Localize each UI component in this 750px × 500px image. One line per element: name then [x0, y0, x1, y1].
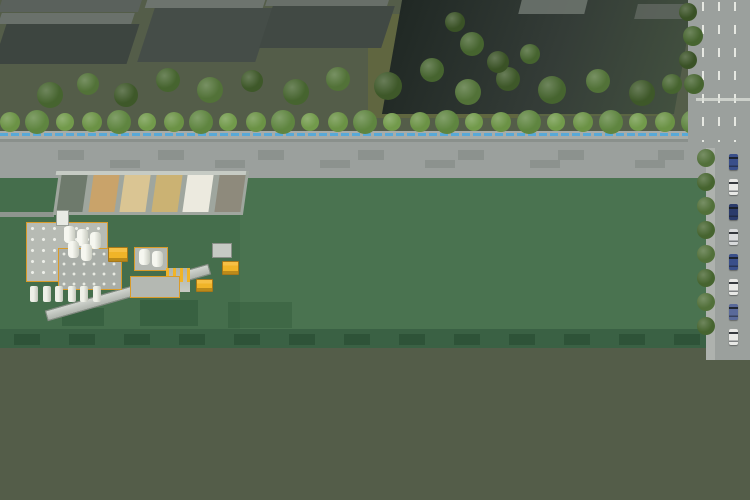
- side-road-car: [729, 154, 738, 170]
- tree-cluster: [283, 79, 309, 105]
- road-patch: [215, 160, 245, 168]
- hedge-tree: [547, 113, 565, 131]
- hedge-tree: [435, 110, 459, 134]
- side-road-tree: [697, 149, 715, 167]
- hedge-tree: [107, 110, 131, 134]
- side-road-car: [729, 329, 738, 345]
- hedge-tree: [164, 112, 184, 132]
- side-road-tree: [697, 269, 715, 287]
- road-patch: [458, 150, 484, 160]
- tree-cluster: [445, 12, 465, 32]
- cross-road-lane-dash: [734, 2, 736, 142]
- plant-hopper: [55, 286, 63, 302]
- hedge-tree: [246, 112, 266, 132]
- tree-cluster: [538, 76, 566, 104]
- tree-cluster: [77, 73, 99, 95]
- tree-cluster: [326, 67, 350, 91]
- tree-cluster: [460, 32, 484, 56]
- aggregate-material: [151, 175, 182, 212]
- aerial-factory-site-render: [0, 0, 750, 500]
- plant-platform: [130, 276, 180, 298]
- transfer-cart: [222, 261, 239, 275]
- cross-road-lane-dash: [718, 2, 720, 142]
- mixer-tank: [139, 249, 150, 265]
- tree-cluster: [241, 70, 263, 92]
- plant-hopper: [80, 286, 88, 302]
- field-slab: [0, 24, 139, 64]
- hedge-tree: [353, 110, 377, 134]
- hedge-tree: [0, 112, 20, 132]
- tree-cluster: [37, 82, 63, 108]
- side-road-tree: [697, 317, 715, 335]
- tree-cluster: [520, 44, 540, 64]
- hedge-tree: [138, 113, 156, 131]
- road-patch: [158, 150, 184, 160]
- field-slab: [0, 0, 142, 12]
- tree-cluster: [156, 68, 180, 92]
- hedge-tree: [410, 112, 430, 132]
- hedge-tree: [82, 112, 102, 132]
- aggregate-material: [88, 175, 119, 212]
- hedge-tree: [271, 110, 295, 134]
- hedge-tree: [56, 113, 74, 131]
- aggregate-material: [214, 175, 245, 212]
- yellow-pallet: [196, 279, 213, 292]
- tree-cluster: [679, 3, 697, 21]
- side-road-car: [729, 304, 738, 320]
- road-patch: [558, 150, 584, 160]
- ground-mark: [228, 302, 292, 328]
- plant-hopper: [93, 286, 101, 302]
- side-road-tree: [697, 293, 715, 311]
- side-road-tree: [697, 245, 715, 263]
- hedge-tree: [629, 113, 647, 131]
- aggregate-material: [182, 175, 213, 212]
- side-road-tree: [697, 197, 715, 215]
- side-road-car: [729, 204, 738, 220]
- road-patch: [110, 160, 140, 168]
- tree-cluster: [586, 69, 610, 93]
- field-slab: [259, 6, 395, 48]
- tree-cluster: [684, 74, 704, 94]
- tree-cluster: [679, 51, 697, 69]
- tree-cluster: [374, 72, 402, 100]
- aggregate-bin-edge: [56, 171, 247, 175]
- mixer-tank: [81, 244, 92, 261]
- line-cabinet: [212, 243, 232, 258]
- mixer-tank: [152, 251, 163, 267]
- road-patch: [425, 160, 455, 168]
- tree-cluster: [662, 74, 682, 94]
- hedge-tree: [599, 110, 623, 134]
- road-patch: [635, 160, 665, 168]
- side-road-tree: [697, 221, 715, 239]
- tree-cluster: [487, 51, 509, 73]
- plant-hopper: [43, 286, 51, 302]
- road-patch: [258, 150, 284, 160]
- side-road-car: [729, 254, 738, 270]
- road-patch: [320, 160, 350, 168]
- field-slab: [518, 0, 587, 14]
- side-road-tree: [697, 173, 715, 191]
- side-road-car: [729, 179, 738, 195]
- plant-hopper: [30, 286, 38, 302]
- tree-cluster: [455, 79, 481, 105]
- tree-cluster: [197, 77, 223, 103]
- mixer-tank: [68, 241, 79, 258]
- field-slab: [145, 0, 266, 8]
- tree-cluster: [683, 26, 703, 46]
- side-road-car: [729, 229, 738, 245]
- factory-edge-blocks: [14, 334, 714, 345]
- yellow-machine: [108, 247, 128, 262]
- road-patch: [530, 160, 560, 168]
- ground-mark: [140, 300, 198, 326]
- plant-tower: [56, 210, 69, 226]
- side-road-car: [729, 279, 738, 295]
- hedge-tree: [517, 110, 541, 134]
- road-patch: [658, 150, 684, 160]
- tree-cluster: [114, 83, 138, 107]
- aggregate-material: [56, 175, 87, 212]
- cross-road-stop-line: [696, 98, 750, 101]
- field-slab: [0, 13, 135, 24]
- road-patch: [358, 150, 384, 160]
- road-patch: [58, 150, 84, 160]
- hedge-tree: [465, 113, 483, 131]
- aggregate-material: [119, 175, 150, 212]
- tree-cluster: [420, 58, 444, 82]
- plant-hopper: [68, 286, 76, 302]
- field-slab: [137, 8, 273, 62]
- hedge-tree: [328, 112, 348, 132]
- cross-road-lane-dash: [702, 2, 704, 142]
- ground-path: [0, 212, 54, 217]
- tree-cluster: [629, 80, 655, 106]
- hedge-tree: [189, 110, 213, 134]
